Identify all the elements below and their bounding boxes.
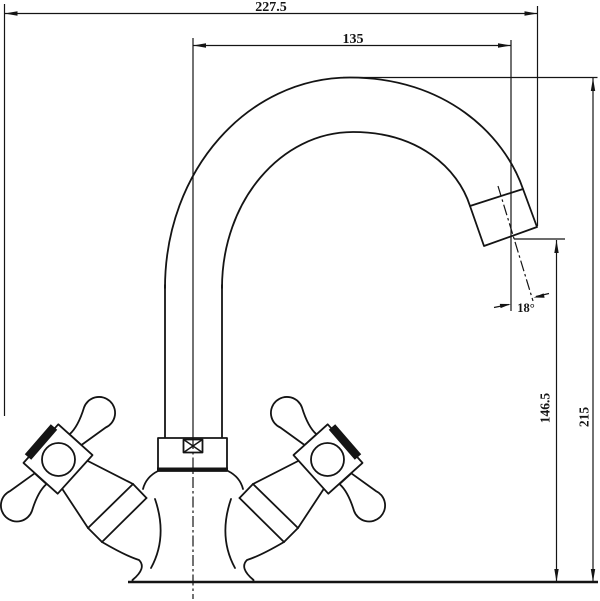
base-left-foot (102, 542, 142, 582)
angle-arrowhead-left (500, 304, 511, 308)
handle-lobe (1, 473, 47, 521)
arrowhead-left (193, 43, 206, 47)
faucet-technical-drawing: 227.5 135 215 146.5 (0, 0, 600, 601)
base-right-upper-curve (228, 471, 243, 489)
arrowhead-bottom (591, 569, 595, 582)
handle-lobe (70, 397, 116, 445)
dim-spout-reach-group: 135 (193, 32, 511, 311)
arrowhead-right (525, 11, 538, 15)
base-left-upper-curve (143, 471, 158, 489)
dim-label-spout-reach: 135 (343, 32, 364, 47)
spout-inner-curve (222, 132, 470, 288)
dim-outlet-height-group: 146.5 (514, 239, 565, 582)
angle-arrowhead-right (534, 293, 545, 297)
arrowhead-top (554, 240, 558, 253)
base-left-contour-line (151, 499, 161, 568)
dim-label-outlet-height: 146.5 (538, 393, 553, 424)
dim-spout-angle-group: 18° (494, 293, 549, 315)
arrowhead-bottom (554, 569, 558, 582)
drawing-sheet: 227.5 135 215 146.5 (0, 0, 600, 601)
dim-label-overall-height: 215 (577, 407, 592, 428)
spout-outer-curve (165, 78, 523, 289)
arrowhead-right (498, 43, 511, 47)
base-right-foot (244, 542, 284, 582)
dim-label-spout-angle: 18° (517, 301, 535, 315)
base-right-contour-line (225, 499, 235, 568)
dim-label-overall-width: 227.5 (255, 0, 287, 15)
spout-tip (470, 189, 537, 246)
faucet-body (1, 78, 537, 583)
arrowhead-top (591, 78, 595, 91)
dim-overall-width-group: 227.5 (5, 0, 538, 416)
handle-hub (42, 443, 75, 476)
arrowhead-left (5, 11, 18, 15)
